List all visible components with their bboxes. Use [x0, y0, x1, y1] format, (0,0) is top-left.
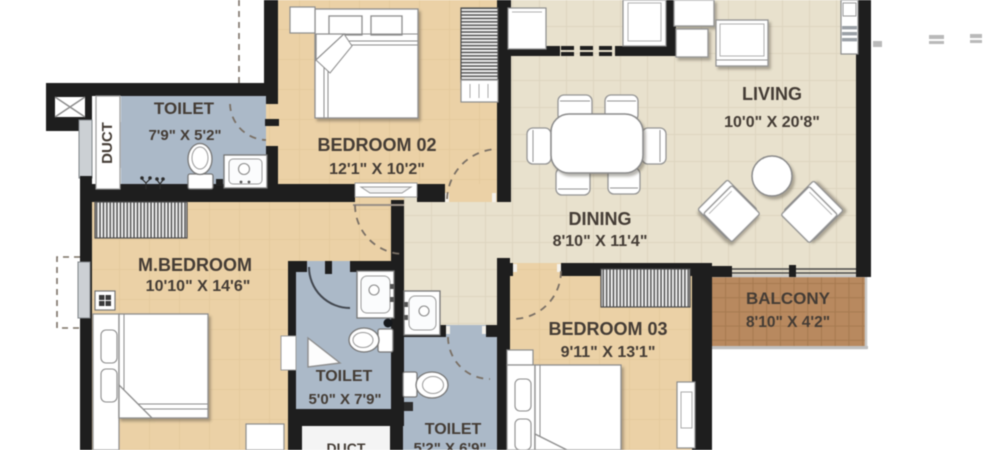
svg-text:LIVING: LIVING	[742, 84, 802, 104]
svg-text:BALCONY: BALCONY	[746, 289, 831, 308]
svg-text:DUCT: DUCT	[99, 122, 116, 164]
svg-text:5'2" X 6'9": 5'2" X 6'9"	[413, 440, 486, 450]
svg-text:BEDROOM 02: BEDROOM 02	[317, 135, 436, 155]
svg-text:5'0" X 7'9": 5'0" X 7'9"	[308, 391, 381, 408]
svg-text:DINING: DINING	[569, 209, 632, 229]
svg-text:TOILET: TOILET	[425, 421, 482, 438]
svg-text:8'10" X 4'2": 8'10" X 4'2"	[746, 314, 830, 331]
svg-text:9'11" X 13'1": 9'11" X 13'1"	[561, 344, 656, 361]
svg-text:8'10" X 11'4": 8'10" X 11'4"	[553, 233, 648, 250]
svg-text:10'10" X 14'6": 10'10" X 14'6"	[146, 278, 251, 295]
svg-text:BEDROOM 03: BEDROOM 03	[548, 319, 667, 339]
svg-text:M.BEDROOM: M.BEDROOM	[138, 255, 252, 275]
svg-text:DUCT: DUCT	[327, 440, 366, 450]
svg-text:12'1" X 10'2": 12'1" X 10'2"	[329, 161, 425, 178]
svg-text:10'0" X 20'8": 10'0" X 20'8"	[724, 114, 820, 131]
svg-text:TOILET: TOILET	[316, 368, 373, 385]
svg-text:TOILET: TOILET	[154, 99, 215, 118]
svg-text:7'9" X 5'2": 7'9" X 5'2"	[148, 127, 221, 144]
